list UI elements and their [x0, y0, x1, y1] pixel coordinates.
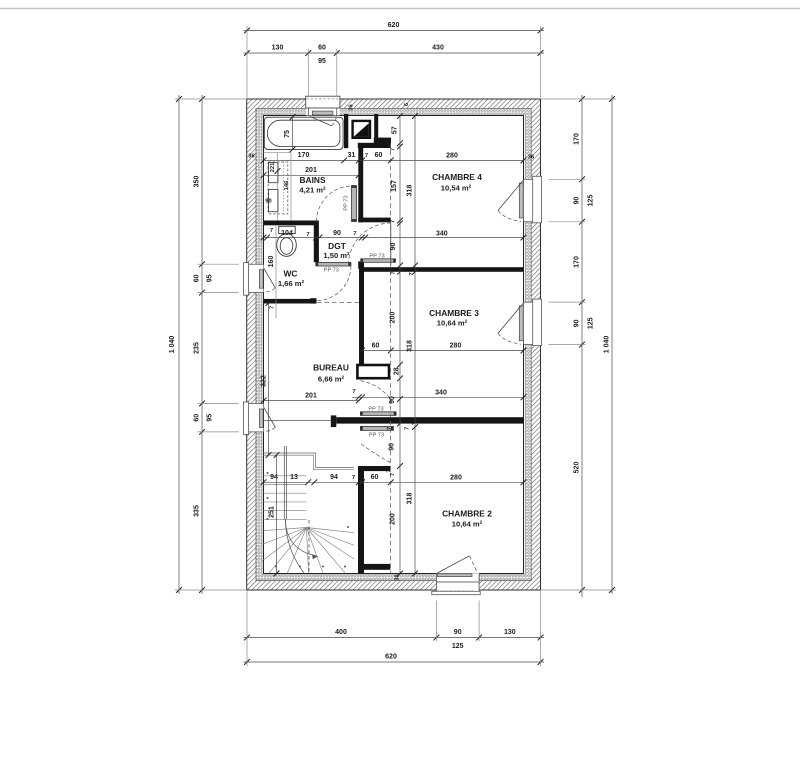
- svg-text:170: 170: [574, 133, 581, 145]
- svg-text:60: 60: [372, 343, 380, 350]
- svg-text:75: 75: [284, 130, 291, 138]
- svg-text:90: 90: [388, 443, 395, 451]
- svg-text:146: 146: [284, 180, 290, 190]
- svg-text:125: 125: [588, 195, 595, 207]
- svg-text:200: 200: [390, 513, 397, 525]
- svg-text:60: 60: [194, 274, 201, 282]
- svg-text:90: 90: [574, 197, 581, 205]
- svg-text:36: 36: [528, 155, 535, 161]
- svg-text:BUREAU: BUREAU: [313, 363, 349, 373]
- svg-text:280: 280: [450, 343, 462, 350]
- svg-text:430: 430: [432, 45, 444, 52]
- svg-text:PP 73: PP 73: [324, 268, 339, 274]
- svg-text:7: 7: [391, 220, 397, 223]
- svg-text:PP 73: PP 73: [369, 253, 384, 259]
- svg-text:6,66 m²: 6,66 m²: [318, 375, 345, 384]
- svg-text:520: 520: [574, 462, 581, 474]
- svg-text:1 040: 1 040: [604, 336, 611, 354]
- svg-text:90: 90: [390, 243, 397, 251]
- svg-text:7: 7: [391, 148, 397, 151]
- svg-text:7: 7: [270, 306, 276, 309]
- svg-text:WC: WC: [284, 269, 298, 279]
- svg-text:340: 340: [436, 230, 448, 237]
- svg-text:90: 90: [389, 396, 396, 404]
- svg-text:10,64 m²: 10,64 m²: [452, 520, 483, 529]
- svg-text:201: 201: [305, 167, 317, 174]
- svg-text:350: 350: [194, 176, 201, 188]
- svg-text:620: 620: [385, 654, 397, 661]
- svg-text:PP 73: PP 73: [344, 195, 350, 210]
- svg-text:60: 60: [375, 152, 383, 159]
- svg-text:1,66 m²: 1,66 m²: [278, 279, 305, 288]
- svg-text:60: 60: [371, 474, 379, 481]
- svg-text:BAINS: BAINS: [299, 175, 325, 185]
- svg-text:7: 7: [270, 228, 273, 234]
- svg-text:95: 95: [207, 414, 214, 422]
- svg-text:7: 7: [353, 231, 356, 237]
- svg-text:CHAMBRE 3: CHAMBRE 3: [429, 308, 479, 318]
- svg-text:251: 251: [268, 506, 275, 518]
- svg-text:1 040: 1 040: [169, 336, 176, 354]
- svg-text:157: 157: [391, 180, 398, 192]
- svg-text:620: 620: [388, 22, 400, 29]
- svg-text:7: 7: [387, 427, 393, 430]
- svg-text:318: 318: [406, 493, 413, 505]
- svg-text:280: 280: [450, 475, 462, 482]
- svg-text:90: 90: [265, 199, 271, 205]
- svg-text:95: 95: [318, 58, 326, 65]
- svg-text:201: 201: [305, 392, 317, 399]
- svg-text:170: 170: [298, 152, 310, 159]
- svg-text:28: 28: [393, 367, 400, 375]
- svg-text:60: 60: [194, 414, 201, 422]
- svg-text:CHAMBRE 2: CHAMBRE 2: [442, 509, 492, 519]
- svg-text:7: 7: [404, 427, 410, 430]
- svg-text:322: 322: [260, 375, 267, 387]
- svg-text:PP 73: PP 73: [369, 433, 384, 439]
- svg-text:7: 7: [387, 469, 393, 472]
- svg-text:221: 221: [270, 162, 276, 172]
- svg-text:125: 125: [452, 643, 464, 650]
- svg-text:90: 90: [454, 629, 462, 636]
- svg-text:PP 73: PP 73: [368, 407, 383, 413]
- svg-text:125: 125: [588, 317, 595, 329]
- svg-text:130: 130: [272, 45, 284, 52]
- svg-text:13: 13: [290, 474, 298, 481]
- svg-text:1,50 m²: 1,50 m²: [323, 251, 350, 260]
- svg-text:90: 90: [333, 230, 341, 237]
- svg-text:95: 95: [207, 274, 214, 282]
- svg-text:335: 335: [194, 505, 201, 517]
- svg-text:31: 31: [348, 152, 356, 159]
- svg-text:7: 7: [352, 389, 355, 395]
- svg-text:235: 235: [194, 342, 201, 354]
- svg-text:10,64 m²: 10,64 m²: [437, 319, 468, 328]
- svg-text:90: 90: [574, 319, 581, 327]
- svg-text:200: 200: [389, 312, 396, 324]
- svg-text:340: 340: [435, 389, 447, 396]
- svg-text:7: 7: [352, 475, 355, 481]
- svg-text:7: 7: [390, 473, 396, 476]
- svg-text:318: 318: [406, 340, 413, 352]
- svg-text:7: 7: [365, 153, 368, 159]
- svg-text:7: 7: [306, 232, 309, 238]
- svg-text:4,21 m²: 4,21 m²: [299, 186, 326, 195]
- svg-text:280: 280: [446, 152, 458, 159]
- svg-text:10,54 m²: 10,54 m²: [441, 184, 472, 193]
- svg-text:DGT: DGT: [328, 241, 347, 251]
- svg-text:36: 36: [348, 104, 354, 111]
- svg-text:170: 170: [574, 256, 581, 268]
- svg-text:7: 7: [391, 271, 397, 274]
- svg-text:318: 318: [406, 185, 413, 197]
- svg-text:130: 130: [504, 629, 516, 636]
- svg-text:36: 36: [248, 153, 255, 159]
- svg-text:94: 94: [330, 474, 338, 481]
- svg-text:60: 60: [318, 45, 326, 52]
- svg-text:400: 400: [335, 629, 347, 636]
- svg-text:30: 30: [395, 574, 401, 580]
- svg-text:57: 57: [392, 126, 399, 134]
- svg-text:104: 104: [281, 230, 293, 237]
- svg-text:160: 160: [268, 256, 275, 268]
- svg-text:CHAMBRE 4: CHAMBRE 4: [432, 172, 482, 182]
